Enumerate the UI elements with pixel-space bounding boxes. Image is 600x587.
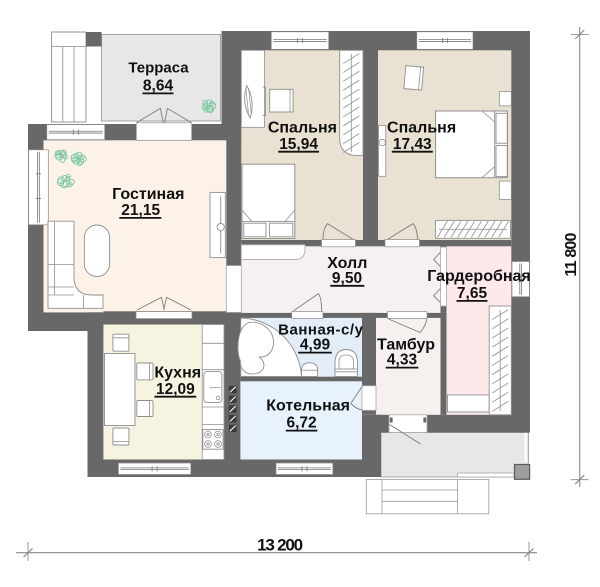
svg-text:Гардеробная: Гардеробная — [427, 268, 531, 285]
svg-text:13 200: 13 200 — [257, 536, 303, 555]
svg-text:11 800: 11 800 — [563, 232, 580, 276]
svg-text:17,43: 17,43 — [393, 136, 432, 153]
svg-text:21,15: 21,15 — [121, 202, 160, 219]
svg-text:4,33: 4,33 — [387, 352, 418, 369]
svg-text:Терраса: Терраса — [128, 60, 189, 77]
svg-text:8,64: 8,64 — [143, 78, 174, 95]
svg-text:12,09: 12,09 — [156, 381, 195, 398]
svg-text:Гостиная: Гостиная — [112, 186, 184, 203]
svg-text:4,99: 4,99 — [300, 337, 331, 354]
svg-text:Спальня: Спальня — [268, 119, 337, 136]
svg-text:7,65: 7,65 — [457, 285, 488, 302]
svg-text:9,50: 9,50 — [332, 270, 362, 287]
svg-text:Спальня: Спальня — [387, 119, 456, 136]
svg-text:6,72: 6,72 — [287, 415, 317, 432]
svg-text:15,94: 15,94 — [279, 136, 318, 153]
svg-text:Котельная: Котельная — [266, 398, 350, 415]
svg-text:Кухня: Кухня — [154, 365, 201, 382]
